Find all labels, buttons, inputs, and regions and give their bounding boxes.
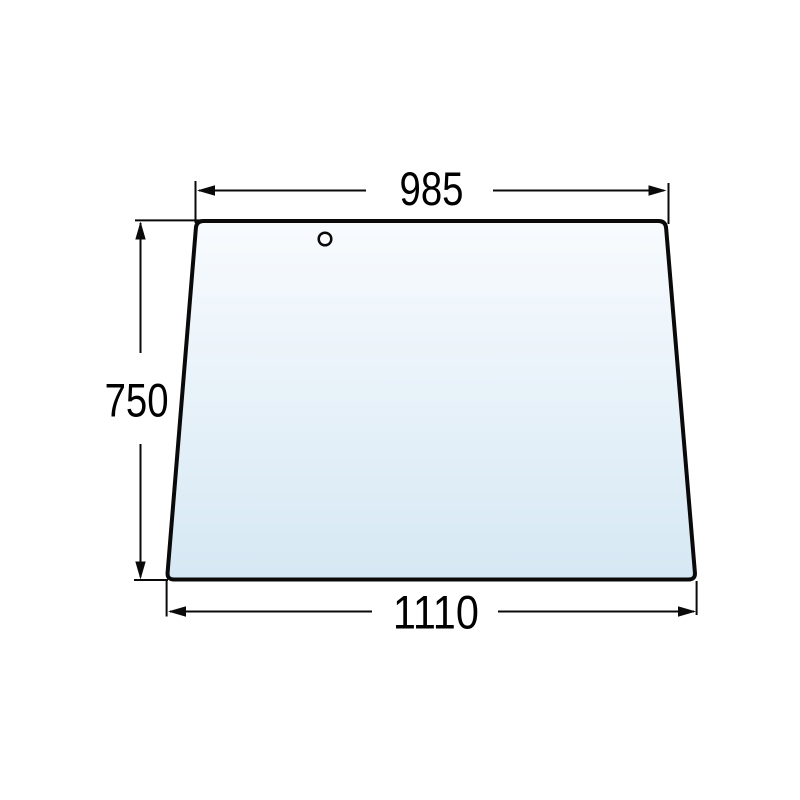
svg-text:985: 985 bbox=[400, 162, 464, 215]
svg-text:750: 750 bbox=[105, 374, 169, 427]
svg-text:1110: 1110 bbox=[393, 586, 479, 639]
